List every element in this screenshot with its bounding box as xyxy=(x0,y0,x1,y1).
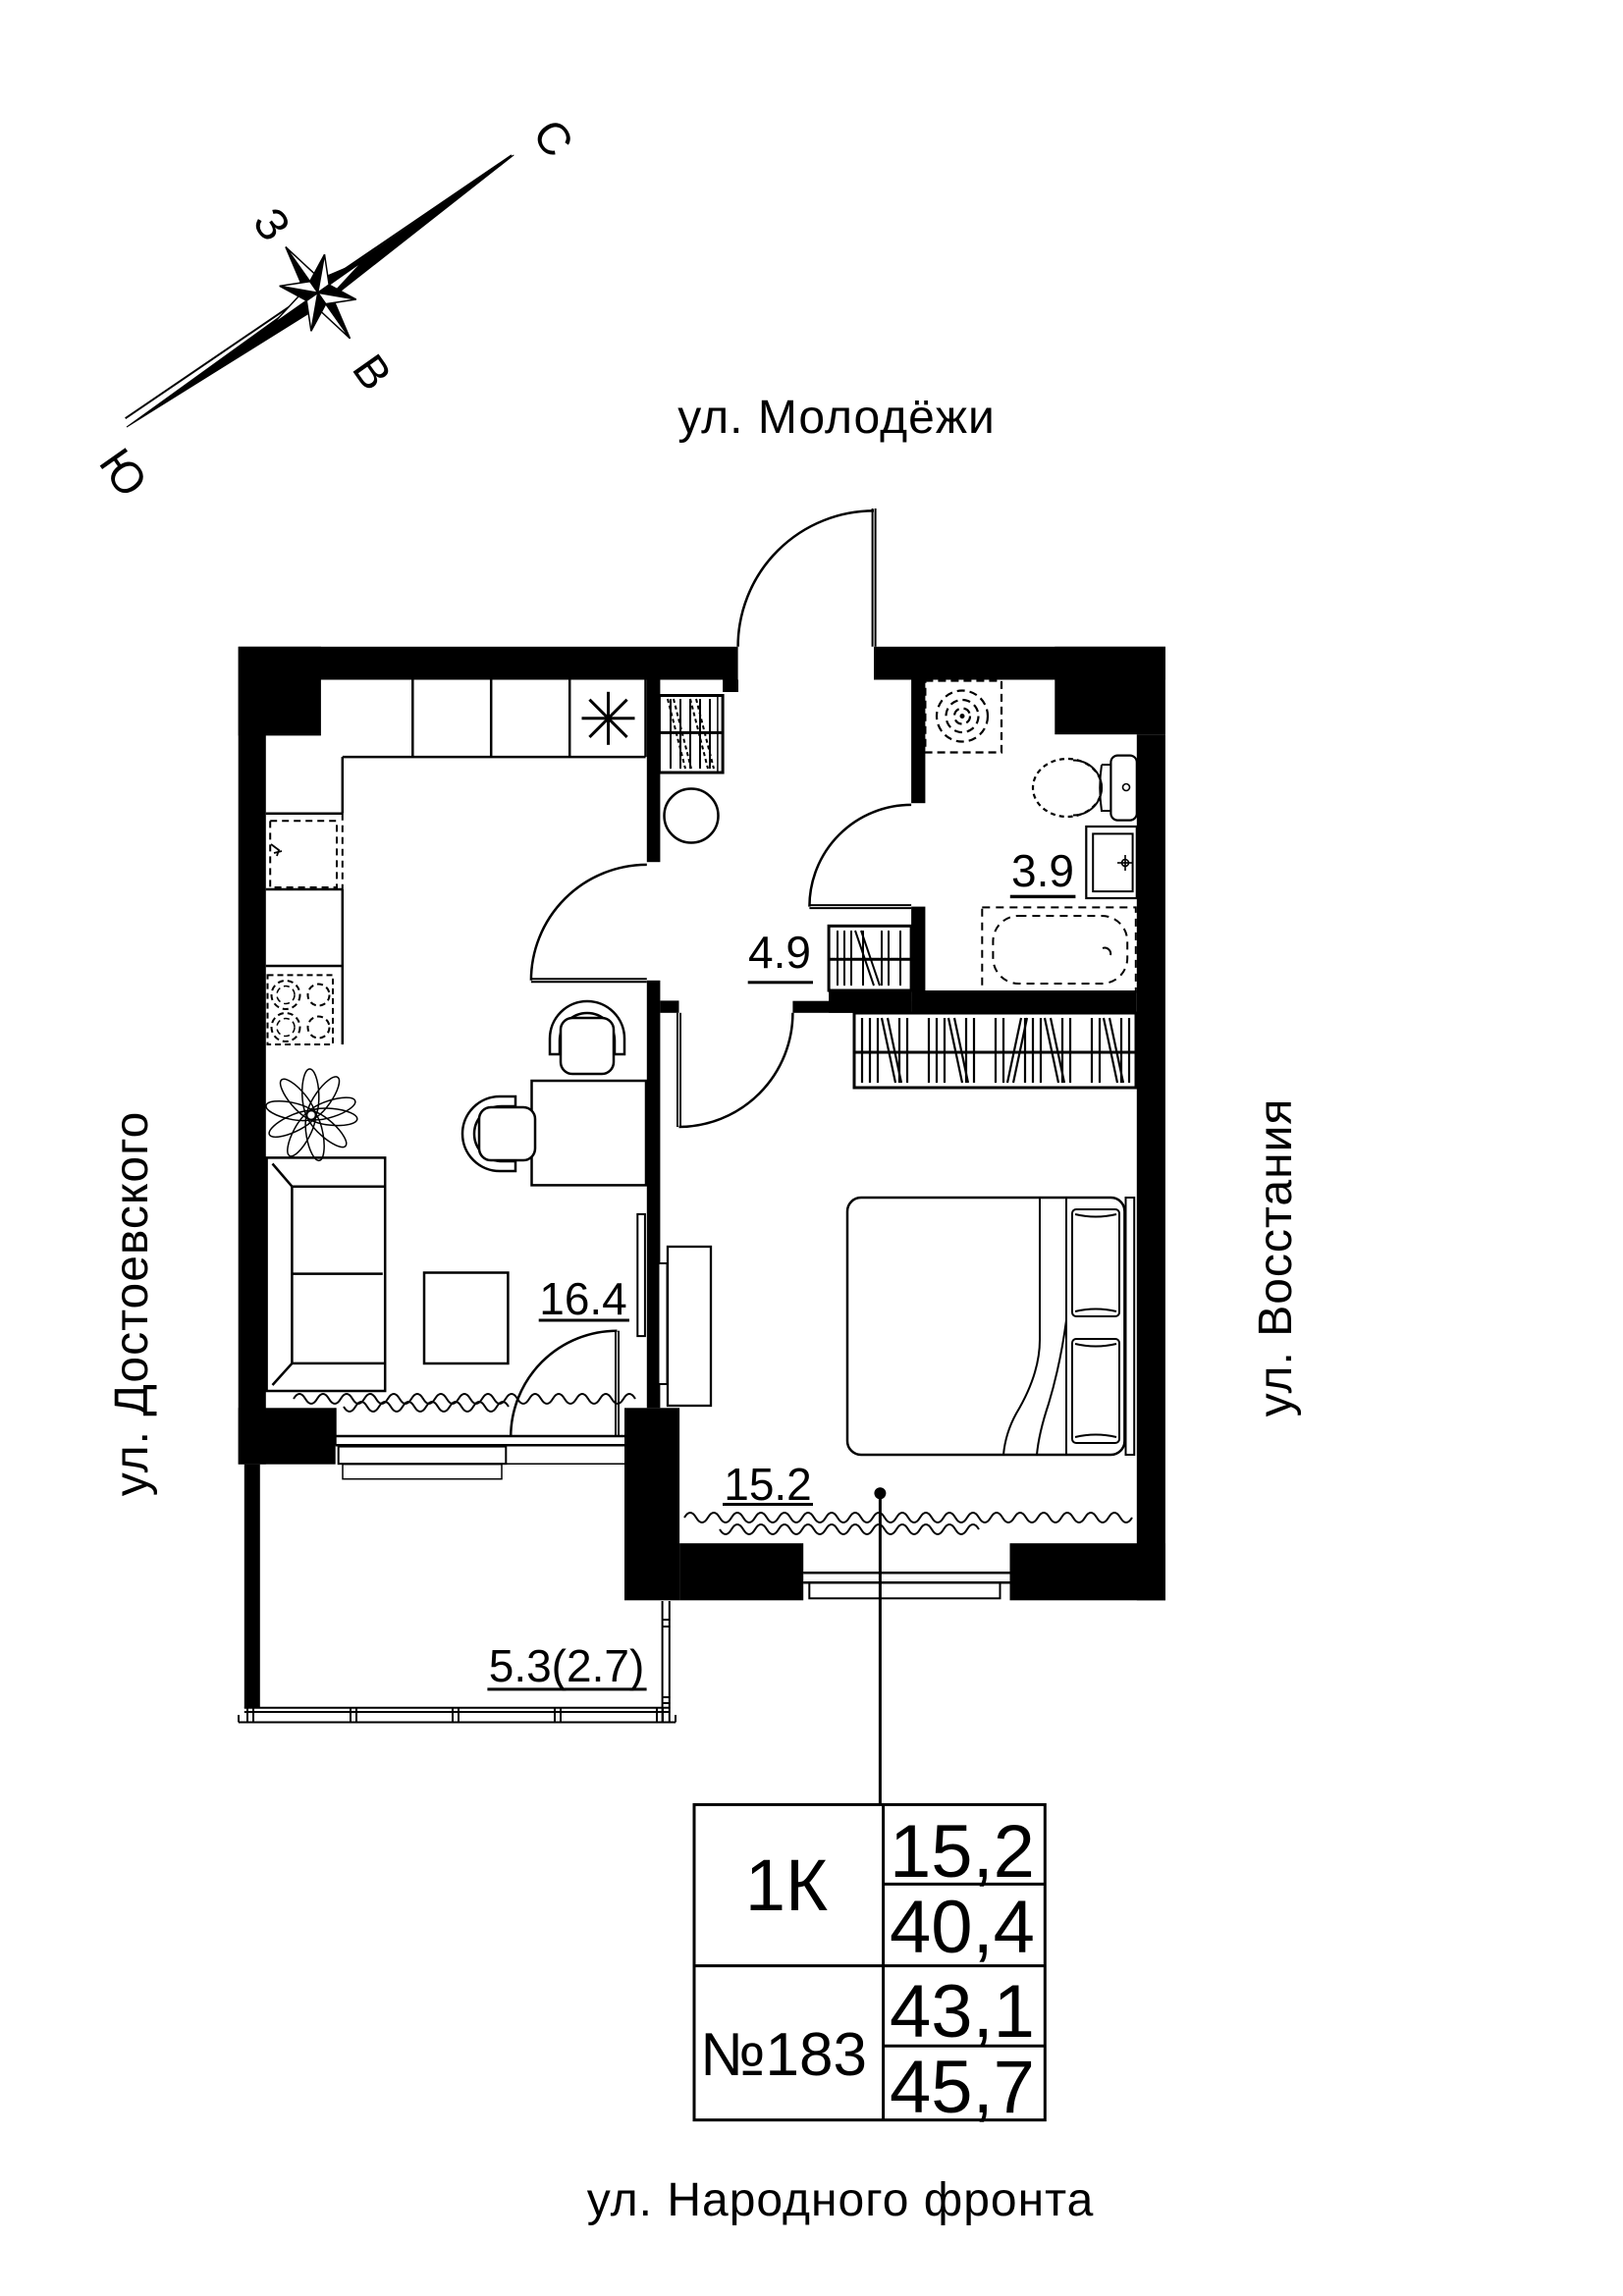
svg-text:15.2: 15.2 xyxy=(724,1459,812,1510)
svg-text:4.9: 4.9 xyxy=(748,927,811,978)
svg-text:ул. Достоевского: ул. Достоевского xyxy=(106,1111,158,1497)
svg-text:5.3(2.7): 5.3(2.7) xyxy=(489,1640,645,1691)
svg-text:ул. Молодёжи: ул. Молодёжи xyxy=(677,392,996,444)
svg-text:43,1: 43,1 xyxy=(890,1970,1035,2054)
svg-text:40,4: 40,4 xyxy=(890,1886,1035,1969)
svg-text:3.9: 3.9 xyxy=(1011,845,1074,896)
svg-text:ул. Народного фронта: ул. Народного фронта xyxy=(587,2174,1095,2226)
svg-text:15,2: 15,2 xyxy=(890,1810,1035,1894)
svg-text:16.4: 16.4 xyxy=(539,1273,627,1324)
svg-text:45,7: 45,7 xyxy=(890,2046,1035,2129)
svg-text:№183: №183 xyxy=(700,2021,867,2089)
svg-text:1К: 1К xyxy=(745,1844,828,1926)
svg-text:ул. Восстания: ул. Восстания xyxy=(1250,1098,1302,1417)
